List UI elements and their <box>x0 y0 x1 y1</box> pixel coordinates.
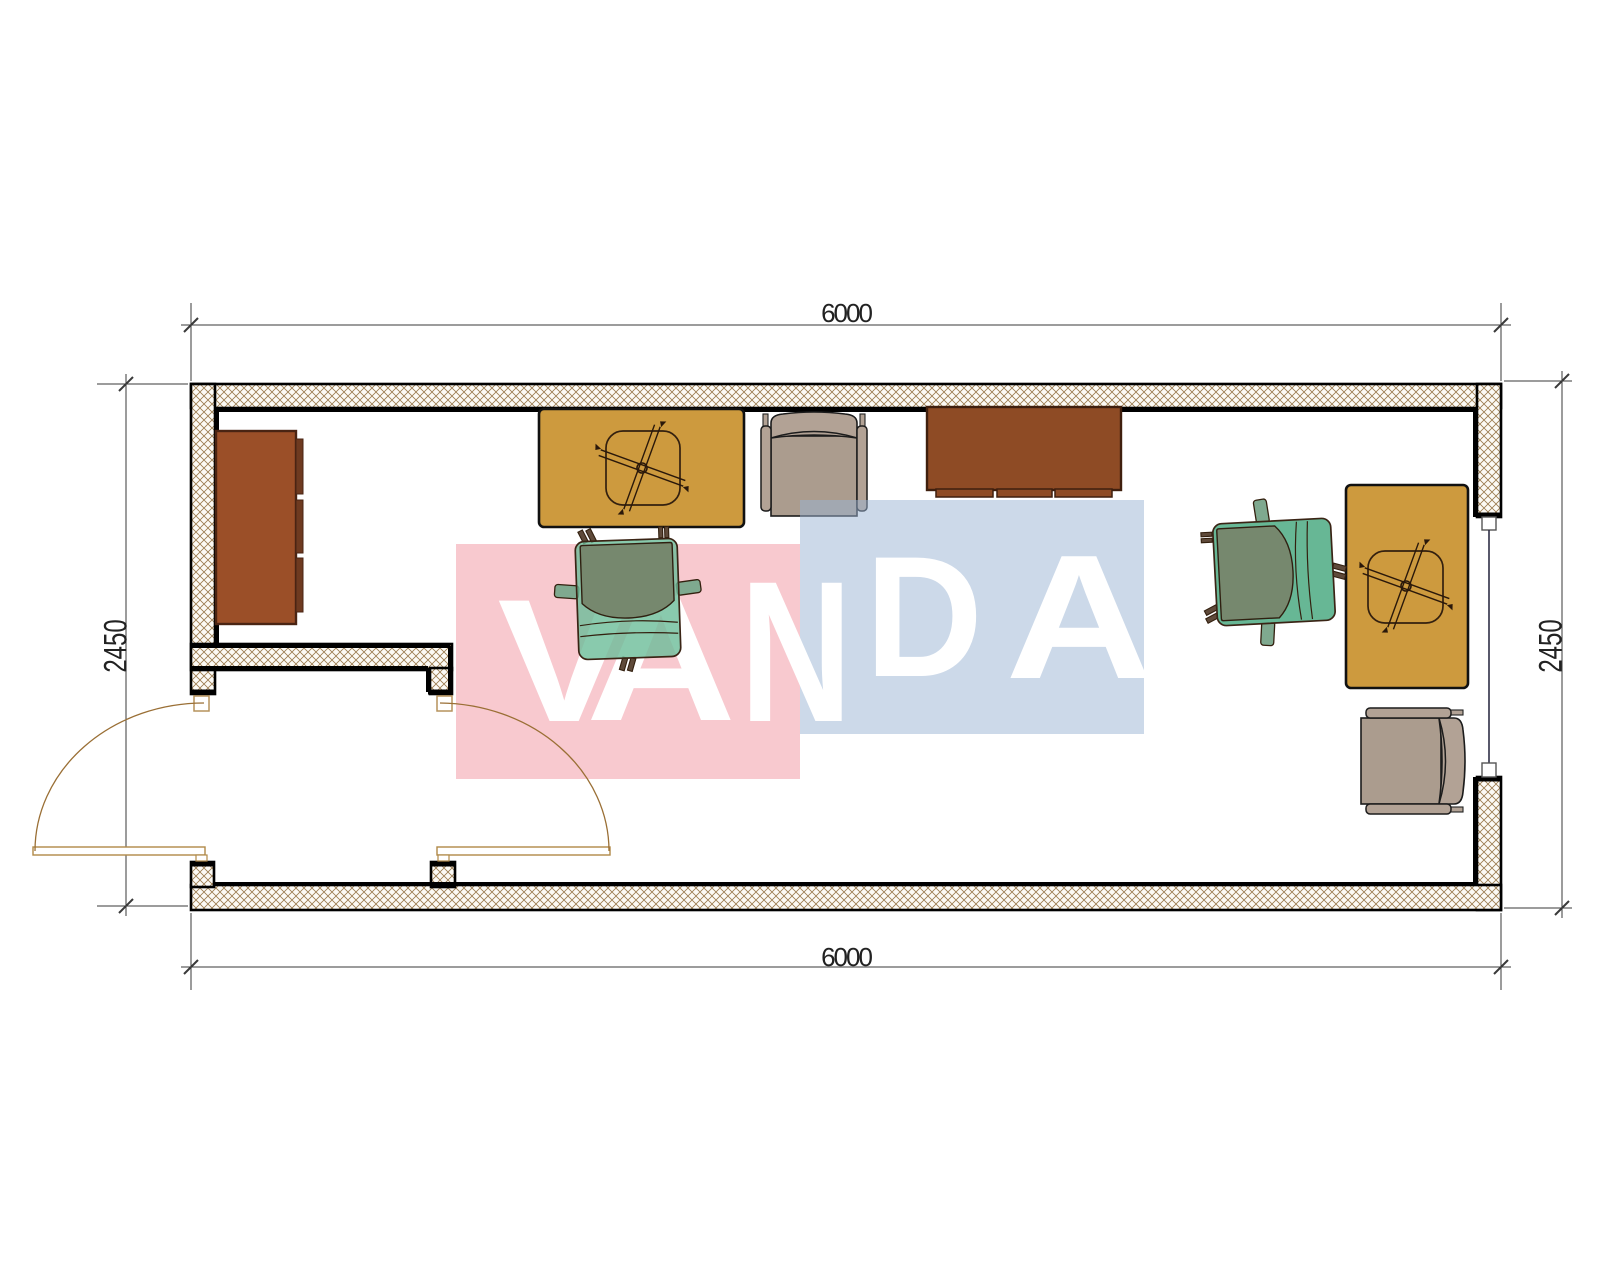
svg-text:N: N <box>740 540 852 765</box>
svg-text:2450: 2450 <box>98 619 134 672</box>
svg-text:A: A <box>1005 519 1152 716</box>
svg-text:2450: 2450 <box>1533 619 1569 672</box>
svg-text:6000: 6000 <box>821 298 872 328</box>
svg-text:D: D <box>865 520 983 713</box>
svg-text:6000: 6000 <box>821 942 872 972</box>
